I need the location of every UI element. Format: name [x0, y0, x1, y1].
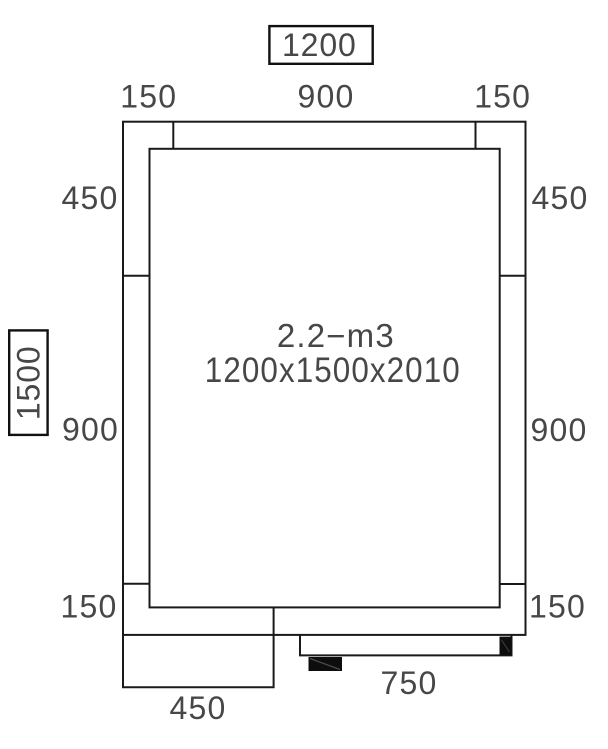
svg-text:150: 150 [61, 589, 118, 625]
svg-text:450: 450 [62, 180, 119, 216]
svg-text:150: 150 [529, 589, 586, 625]
svg-text:900: 900 [298, 79, 355, 115]
svg-text:2.2−m3: 2.2−m3 [277, 317, 395, 354]
svg-text:1500: 1500 [10, 345, 46, 420]
svg-text:900: 900 [62, 412, 119, 448]
svg-text:750: 750 [381, 665, 438, 701]
svg-text:450: 450 [532, 180, 589, 216]
svg-text:150: 150 [474, 79, 531, 115]
svg-text:1200: 1200 [282, 27, 357, 63]
svg-text:450: 450 [170, 690, 227, 726]
svg-text:150: 150 [120, 79, 177, 115]
svg-text:1200x1500x2010: 1200x1500x2010 [205, 351, 461, 390]
svg-text:900: 900 [531, 412, 588, 448]
